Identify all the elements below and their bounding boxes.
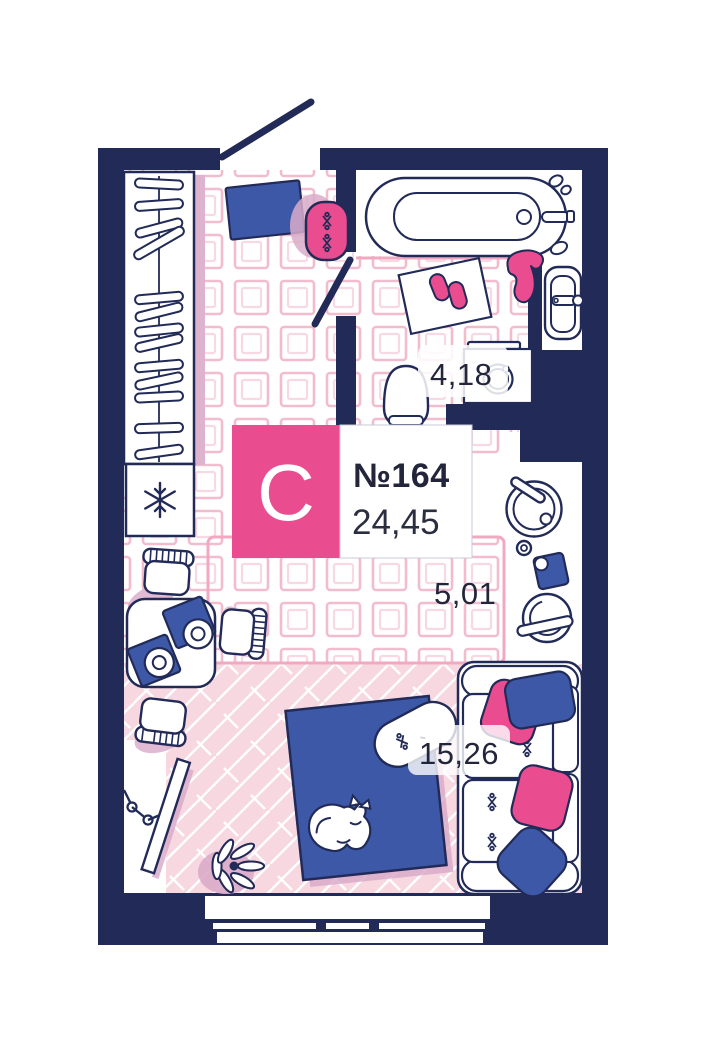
chair-bottom [135, 697, 190, 747]
unit-number: №164 [353, 457, 450, 495]
unit-badge: С №164 24,45 [232, 425, 472, 558]
wardrobe [124, 172, 194, 464]
ottoman [306, 202, 348, 260]
entrance-door-swing [222, 102, 311, 157]
unit-type-letter: С [257, 448, 315, 537]
living-area-label: 15,26 [419, 736, 499, 771]
floor-plan-svg: 4,18 С №164 24,45 5,01 15,26 [0, 0, 705, 1047]
bathroom-sink [545, 267, 583, 339]
window-mullion [369, 923, 379, 929]
wall-left [98, 148, 124, 945]
bathtub-faucet [542, 211, 574, 222]
wall-bathroom-partition-bottom [336, 316, 356, 432]
bathtub-drain [517, 210, 531, 224]
floor-plan-page: 4,18 С №164 24,45 5,01 15,26 [0, 0, 705, 1047]
bathtub [366, 178, 574, 256]
kitchen-area-label: 5,01 [434, 576, 496, 611]
wall-top-left [98, 148, 220, 170]
bathroom-area-label: 4,18 [430, 357, 492, 392]
window-mullion [316, 923, 326, 929]
fridge [126, 464, 194, 536]
jar [517, 541, 531, 555]
pillow-blue [503, 670, 577, 731]
chair-right [219, 606, 267, 660]
sink-faucet [552, 296, 583, 306]
window-sill [217, 932, 483, 943]
cutting-board [533, 552, 569, 590]
unit-total-area: 24,45 [352, 503, 440, 542]
wall-shaft [520, 350, 608, 462]
wall-right [582, 148, 608, 893]
wall-top-right [320, 148, 608, 170]
chair-top [141, 548, 194, 595]
